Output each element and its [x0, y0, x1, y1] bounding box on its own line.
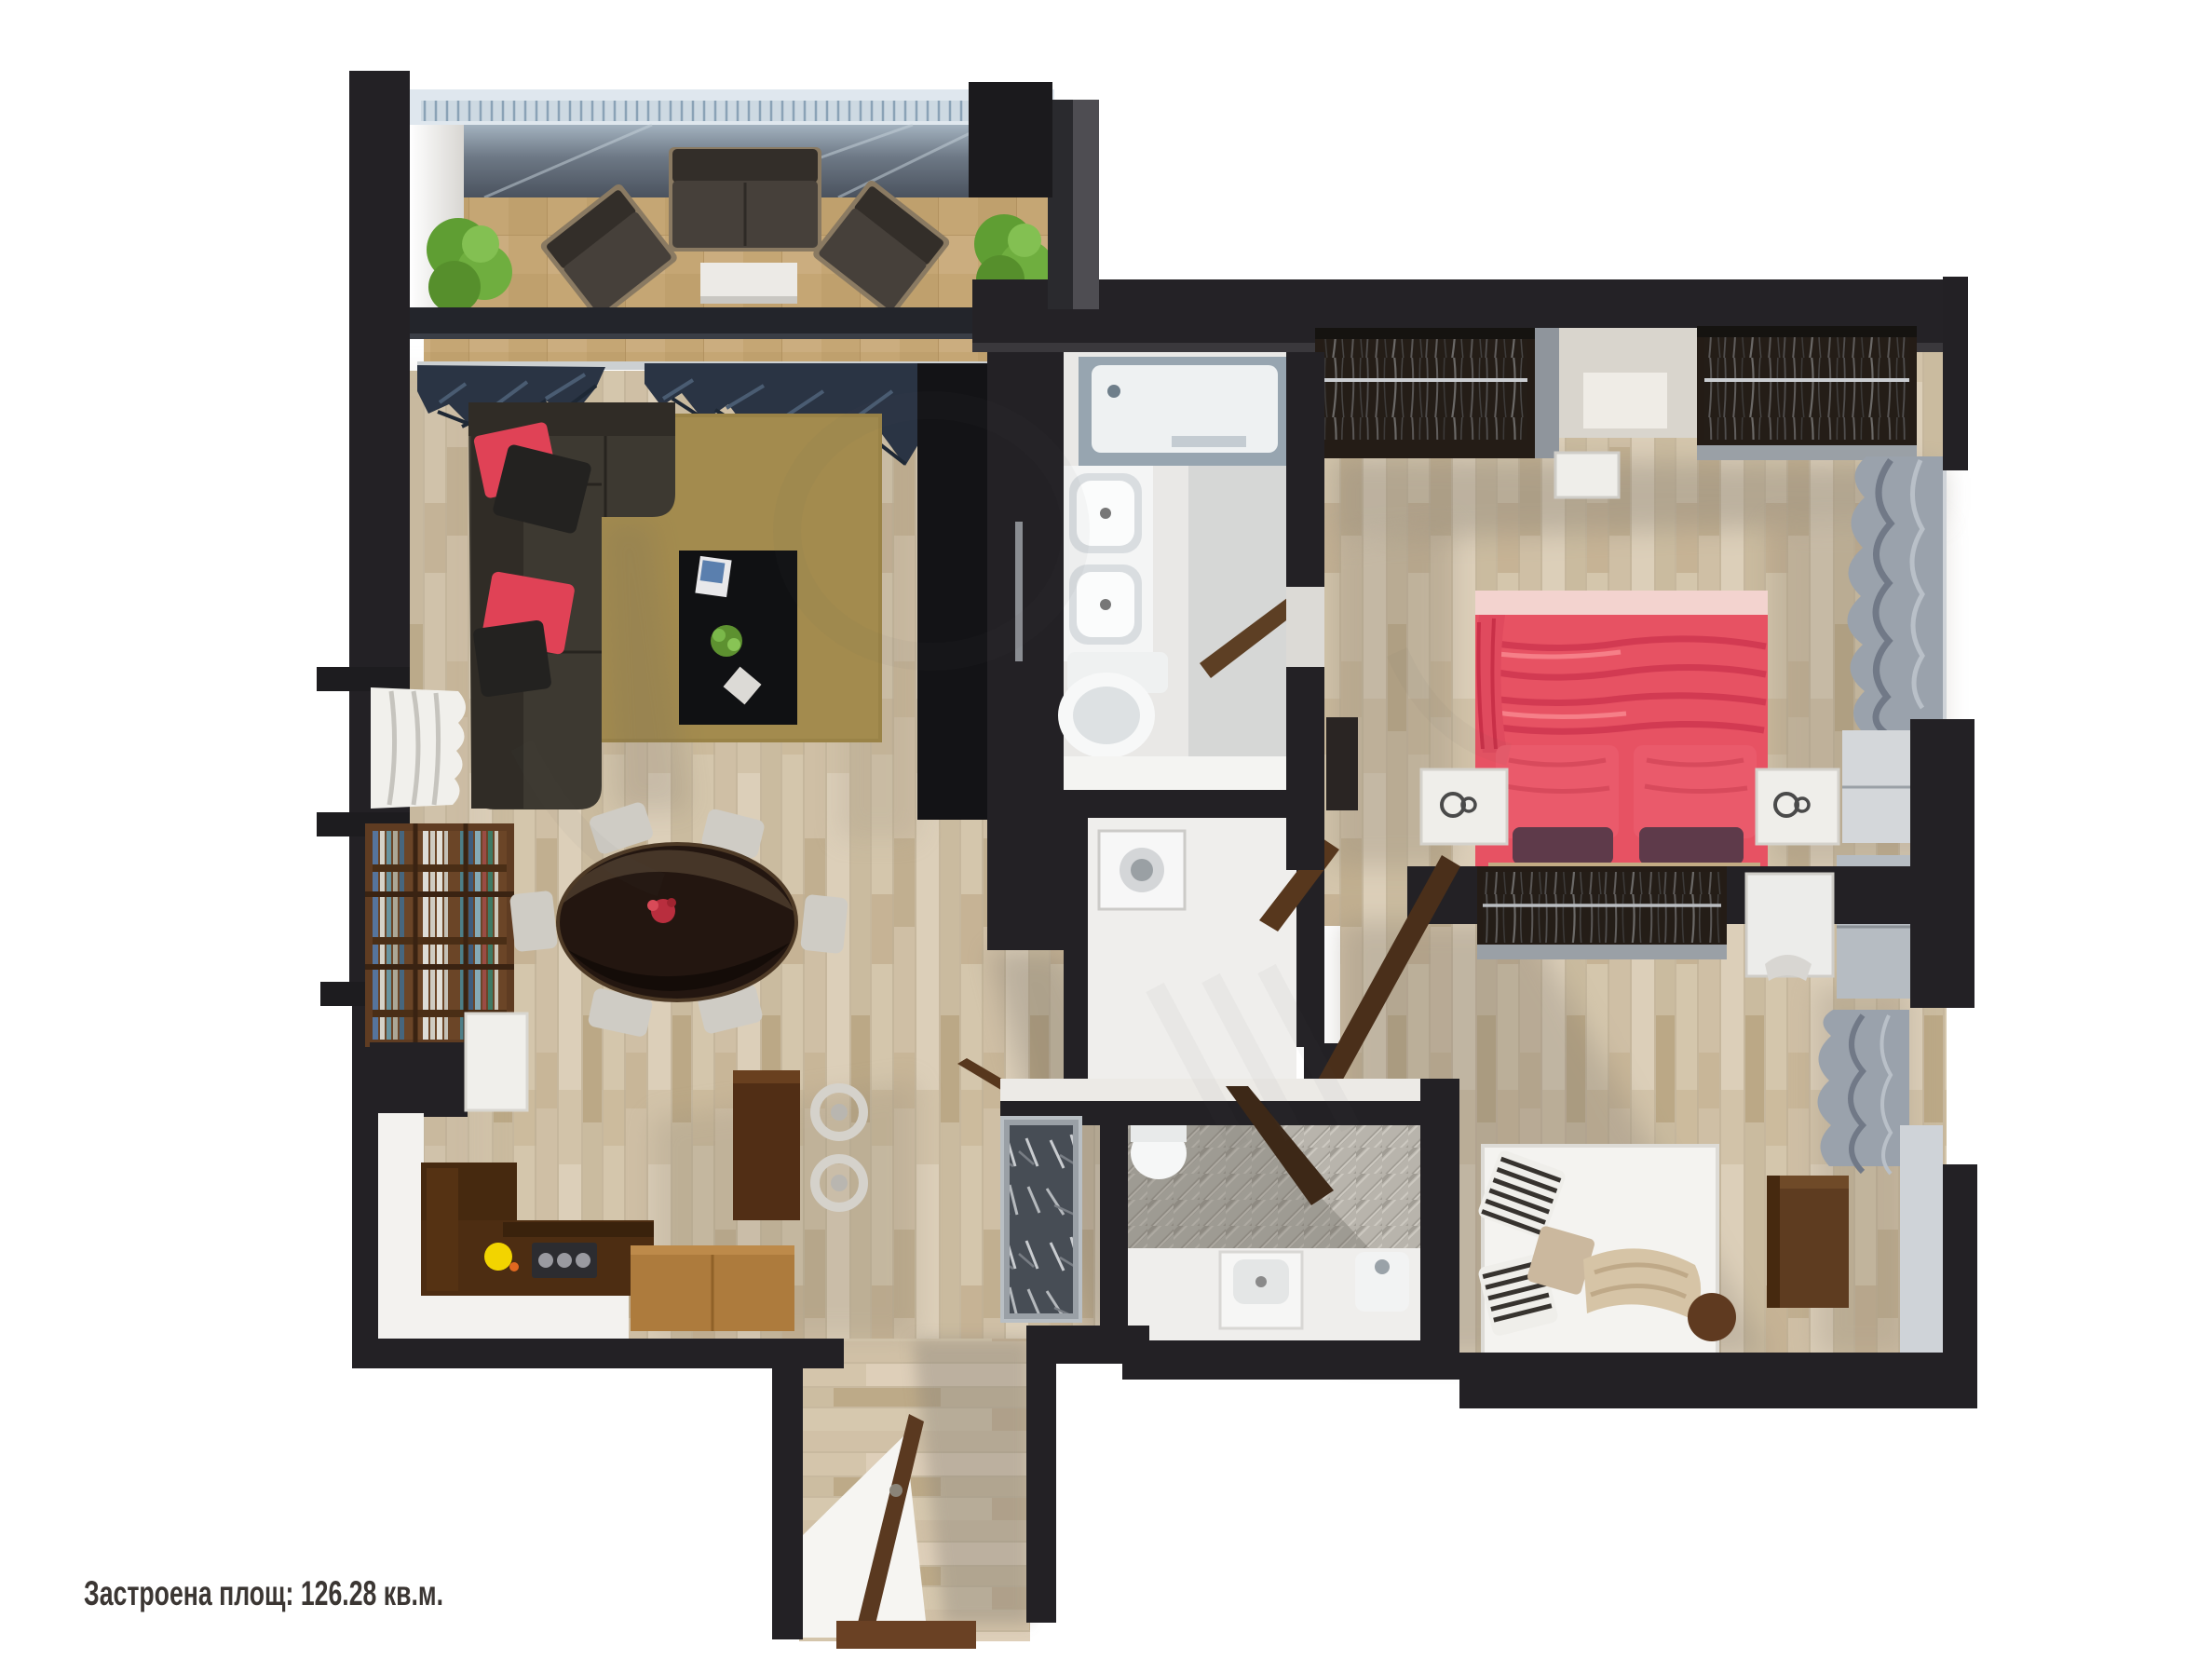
svg-text:Застроена площ: 126.28 кв.м.: Застроена площ: 126.28 кв.м.: [84, 1574, 443, 1612]
